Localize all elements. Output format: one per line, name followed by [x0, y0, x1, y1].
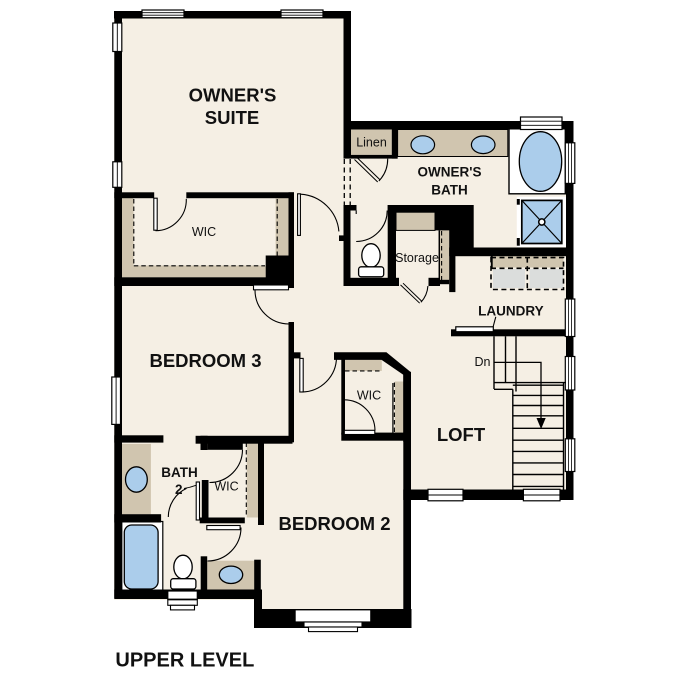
- svg-text:LOFT: LOFT: [437, 424, 486, 445]
- svg-text:UPPER LEVEL: UPPER LEVEL: [115, 650, 254, 672]
- svg-text:LAUNDRY: LAUNDRY: [478, 304, 544, 319]
- svg-text:Dn: Dn: [475, 355, 491, 369]
- svg-text:Linen: Linen: [356, 136, 387, 150]
- svg-text:WIC: WIC: [214, 479, 238, 493]
- svg-text:WIC: WIC: [192, 225, 216, 239]
- svg-text:OWNER'S: OWNER'S: [418, 165, 482, 180]
- svg-text:BEDROOM 2: BEDROOM 2: [278, 513, 390, 534]
- svg-text:SUITE: SUITE: [205, 107, 259, 128]
- svg-text:OWNER'S: OWNER'S: [189, 85, 277, 106]
- svg-text:WIC: WIC: [357, 389, 381, 403]
- svg-text:Storage: Storage: [395, 251, 439, 265]
- svg-text:BATH: BATH: [161, 465, 198, 480]
- svg-text:2: 2: [175, 482, 183, 497]
- svg-text:BATH: BATH: [431, 183, 468, 198]
- svg-text:BEDROOM 3: BEDROOM 3: [149, 350, 261, 371]
